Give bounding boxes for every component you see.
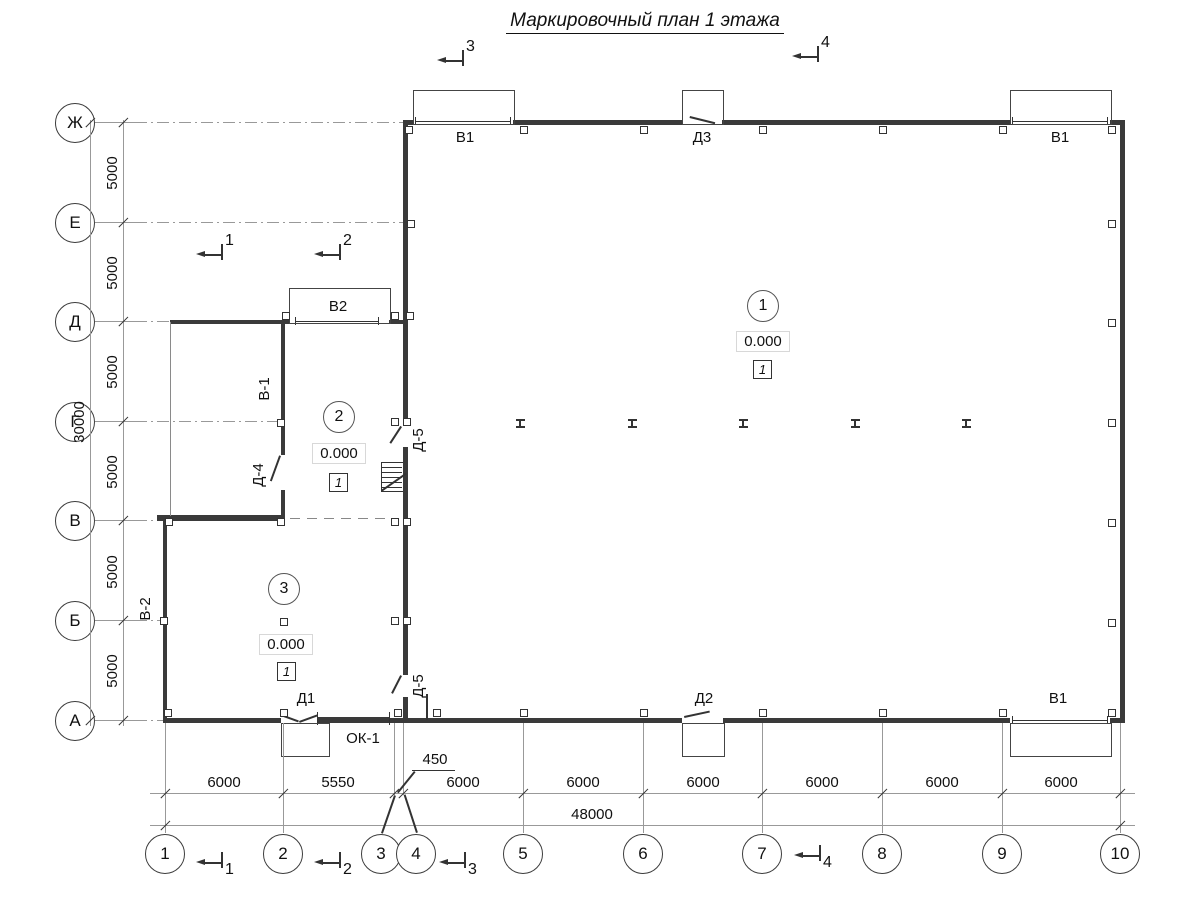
room-2-elevation: 0.000 <box>312 443 366 464</box>
section-marker-top-4: 4 <box>792 42 832 70</box>
canopy-outline <box>281 723 330 757</box>
dim-col-5: 6000 <box>673 774 733 791</box>
wall-segment <box>163 718 281 723</box>
dimension-line <box>882 723 883 833</box>
column-marker <box>277 419 285 427</box>
axis-col-9: 9 <box>982 834 1022 874</box>
section-marker-bottom-3: 3 <box>439 848 479 876</box>
dimension-line <box>95 520 135 521</box>
wall-segment <box>403 697 408 718</box>
section-number: 3 <box>468 861 477 879</box>
axis-col-1: 1 <box>145 834 185 874</box>
axis-col-3: 3 <box>361 834 401 874</box>
dim-row-3: 5000 <box>104 450 121 494</box>
label-partition-v-1: В-1 <box>256 368 273 410</box>
axis-row-e: Е <box>55 203 95 243</box>
column-marker <box>879 126 887 134</box>
floor-plan-canvas: Маркировочный план 1 этажа Ж Е Д Г В Б А… <box>0 0 1200 900</box>
axis-row-v: В <box>55 501 95 541</box>
section-arrow-icon <box>439 859 448 865</box>
section-number: 4 <box>821 34 830 52</box>
column-marker <box>277 518 285 526</box>
column-marker <box>282 312 290 320</box>
column-marker <box>391 518 399 526</box>
dim-col-total: 48000 <box>558 806 626 823</box>
wall-segment <box>281 322 285 455</box>
section-number: 2 <box>343 232 352 250</box>
i-beam-column-icon <box>739 426 748 428</box>
section-arrow-icon <box>437 57 446 63</box>
dim-col-0: 6000 <box>194 774 254 791</box>
dimension-line <box>95 620 135 621</box>
canopy-outline <box>413 90 515 125</box>
room-1-elevation: 0.000 <box>736 331 790 352</box>
column-marker <box>433 709 441 717</box>
dim-col-8: 6000 <box>1031 774 1091 791</box>
wall-segment <box>389 320 403 324</box>
room-1-floor-type: 1 <box>753 360 772 379</box>
column-marker <box>520 709 528 717</box>
axis-row-label: Б <box>69 611 80 631</box>
dimension-line <box>95 222 135 223</box>
column-marker <box>403 617 411 625</box>
stair-tread-line <box>382 477 402 478</box>
column-marker <box>403 518 411 526</box>
dim-col-3: 6000 <box>433 774 493 791</box>
column-marker <box>280 618 288 626</box>
column-marker <box>1108 709 1116 717</box>
section-number: 3 <box>466 38 475 56</box>
section-marker-bottom-2: 2 <box>314 848 354 876</box>
wall-segment <box>722 120 1010 125</box>
axis-dashdot-line <box>135 720 163 721</box>
dim-row-2: 5000 <box>104 350 121 394</box>
column-marker <box>1108 619 1116 627</box>
axis-col-label: 9 <box>997 844 1006 864</box>
column-marker <box>1108 519 1116 527</box>
column-marker <box>640 709 648 717</box>
section-marker-bottom-4: 4 <box>794 841 834 869</box>
axis-dashdot-line <box>135 222 403 223</box>
room-2-floor-type: 1 <box>329 473 348 492</box>
axis-col-label: 1 <box>160 844 169 864</box>
section-number: 1 <box>225 232 234 250</box>
room-number: 2 <box>335 408 344 426</box>
wall-segment <box>723 718 1010 723</box>
column-marker <box>394 709 402 717</box>
wall-segment <box>318 717 390 722</box>
axis-row-d: Д <box>55 302 95 342</box>
section-bar <box>819 845 821 861</box>
dimension-line <box>394 723 395 795</box>
section-arrow-icon <box>794 852 803 858</box>
wall-segment <box>1120 120 1125 723</box>
column-marker <box>164 709 172 717</box>
wall-segment <box>1110 718 1125 723</box>
section-marker-top-3: 3 <box>437 46 477 74</box>
gate-leaf-line <box>412 770 455 771</box>
axis-dashdot-line <box>135 620 163 621</box>
dim-col-7: 6000 <box>912 774 972 791</box>
axis-col-label: 4 <box>411 844 420 864</box>
axis-dashdot-line <box>135 321 170 322</box>
door-swing-line <box>684 711 710 718</box>
column-marker <box>280 709 288 717</box>
axis-col-label: 8 <box>877 844 886 864</box>
dim-row-5: 5000 <box>104 649 121 693</box>
section-bar <box>339 244 341 260</box>
section-number: 4 <box>823 854 832 872</box>
dimension-line <box>523 723 524 833</box>
page-title: Маркировочный план 1 этажа <box>445 10 845 32</box>
dimension-line <box>165 723 166 833</box>
section-bar <box>464 852 466 868</box>
axis-dashdot-line <box>135 520 157 521</box>
column-marker <box>391 617 399 625</box>
label-door-d2: Д2 <box>679 690 729 707</box>
label-gate-v1-top-left: В1 <box>440 129 490 146</box>
axis-dashdot-line <box>135 122 403 123</box>
dim-col-450: 450 <box>413 751 457 768</box>
section-arrow-icon <box>314 251 323 257</box>
canopy-outline <box>1010 723 1112 757</box>
column-marker <box>999 709 1007 717</box>
axis-row-label: Ж <box>67 113 83 133</box>
column-marker <box>1108 319 1116 327</box>
section-arrow-icon <box>196 859 205 865</box>
gate-leaf-line <box>1012 720 1108 721</box>
wall-segment <box>513 120 682 125</box>
door-swing-line <box>381 795 395 833</box>
axis-col-label: 3 <box>376 844 385 864</box>
column-marker <box>407 220 415 228</box>
column-marker <box>640 126 648 134</box>
column-marker <box>1108 126 1116 134</box>
label-door-d-4: Д-4 <box>250 454 267 496</box>
column-marker <box>406 312 414 320</box>
column-marker <box>391 312 399 320</box>
axis-col-2: 2 <box>263 834 303 874</box>
canopy-outline <box>1010 90 1112 125</box>
axis-row-label: А <box>69 711 80 731</box>
label-window-ok-1: ОК-1 <box>336 730 390 747</box>
dim-col-4: 6000 <box>553 774 613 791</box>
label-gate-v1-bottom-right: В1 <box>1033 690 1083 707</box>
axis-col-5: 5 <box>503 834 543 874</box>
label-door-d1: Д1 <box>281 690 331 707</box>
axis-col-label: 6 <box>638 844 647 864</box>
axis-dashed-line <box>290 518 395 519</box>
section-number: 1 <box>225 861 234 879</box>
column-marker <box>879 709 887 717</box>
section-marker-mid-1: 1 <box>196 240 236 268</box>
wall-segment <box>281 490 285 518</box>
column-marker <box>403 418 411 426</box>
label-door-d-5-lower: Д-5 <box>410 665 427 707</box>
dim-row-1: 5000 <box>104 251 121 295</box>
room-number: 1 <box>759 297 768 315</box>
axis-dashdot-line <box>135 421 281 422</box>
dimension-line <box>762 723 763 833</box>
column-marker <box>999 126 1007 134</box>
room-3-floor-type: 1 <box>277 662 296 681</box>
i-beam-column-icon <box>962 426 971 428</box>
dimension-line <box>95 720 135 721</box>
stair-tread-line <box>382 482 402 483</box>
section-arrow-icon <box>196 251 205 257</box>
dimension-line <box>123 120 124 726</box>
section-bar <box>817 46 819 62</box>
dim-row-4: 5000 <box>104 550 121 594</box>
column-marker <box>391 418 399 426</box>
axis-row-label: Е <box>69 213 80 233</box>
dimension-line <box>1120 723 1121 833</box>
canopy-outline <box>682 723 725 757</box>
axis-col-label: 2 <box>278 844 287 864</box>
section-arrow-icon <box>314 859 323 865</box>
section-number: 2 <box>343 861 352 879</box>
axis-col-10: 10 <box>1100 834 1140 874</box>
axis-row-b: Б <box>55 601 95 641</box>
gate-leaf-line <box>426 694 428 720</box>
wall-segment <box>170 320 289 324</box>
wall-segment <box>157 515 283 521</box>
wall-segment <box>403 447 408 675</box>
section-marker-bottom-1: 1 <box>196 848 236 876</box>
label-door-d-5-upper: Д-5 <box>410 419 427 461</box>
axis-col-7: 7 <box>742 834 782 874</box>
dimension-line <box>95 122 135 123</box>
section-marker-mid-2: 2 <box>314 240 354 268</box>
dim-col-6: 6000 <box>792 774 852 791</box>
dimension-line <box>1002 723 1003 833</box>
section-bar <box>462 50 464 66</box>
column-marker <box>165 518 173 526</box>
axis-row-label: Д <box>69 312 81 332</box>
gate-leaf-line <box>389 712 390 725</box>
axis-col-8: 8 <box>862 834 902 874</box>
column-marker <box>759 126 767 134</box>
door-swing-line <box>404 794 418 833</box>
room-number: 3 <box>280 580 289 598</box>
axis-row-label: В <box>69 511 80 531</box>
dimension-line <box>95 321 135 322</box>
column-marker <box>520 126 528 134</box>
label-gate-v1-top-right: В1 <box>1035 129 1085 146</box>
stair-tread-line <box>382 472 402 473</box>
column-marker <box>759 709 767 717</box>
door-swing-line <box>390 426 402 444</box>
dimension-line <box>95 421 135 422</box>
stair-tread-line <box>382 487 402 488</box>
axis-col-label: 5 <box>518 844 527 864</box>
i-beam-column-icon <box>851 426 860 428</box>
axis-col-6: 6 <box>623 834 663 874</box>
dimension-line <box>643 723 644 833</box>
thin-wall-line <box>170 322 171 516</box>
door-swing-line <box>270 455 281 481</box>
dim-col-1: 5550 <box>308 774 368 791</box>
column-marker <box>405 126 413 134</box>
canopy-outline <box>289 288 391 324</box>
axis-col-4: 4 <box>396 834 436 874</box>
dim-row-total: 30000 <box>71 392 88 452</box>
section-bar <box>221 852 223 868</box>
room-2-number-circle: 2 <box>323 401 355 433</box>
column-marker <box>1108 220 1116 228</box>
room-3-elevation: 0.000 <box>259 634 313 655</box>
axis-col-label: 10 <box>1111 844 1130 864</box>
dimension-line <box>283 723 284 833</box>
room-1-number-circle: 1 <box>747 290 779 322</box>
i-beam-column-icon <box>516 426 525 428</box>
dimension-line <box>90 120 91 726</box>
section-bar <box>221 244 223 260</box>
column-marker <box>1108 419 1116 427</box>
wall-segment <box>403 125 408 425</box>
column-marker <box>160 617 168 625</box>
label-door-d3: Д3 <box>677 129 727 146</box>
room-3-number-circle: 3 <box>268 573 300 605</box>
label-window-v-2: В-2 <box>137 588 154 630</box>
door-swing-line <box>392 675 402 694</box>
i-beam-column-icon <box>628 426 637 428</box>
stair-tread-line <box>382 467 402 468</box>
door-swing-line <box>299 715 317 723</box>
dim-row-0: 5000 <box>104 151 121 195</box>
section-bar <box>339 852 341 868</box>
section-arrow-icon <box>792 53 801 59</box>
axis-col-label: 7 <box>757 844 766 864</box>
